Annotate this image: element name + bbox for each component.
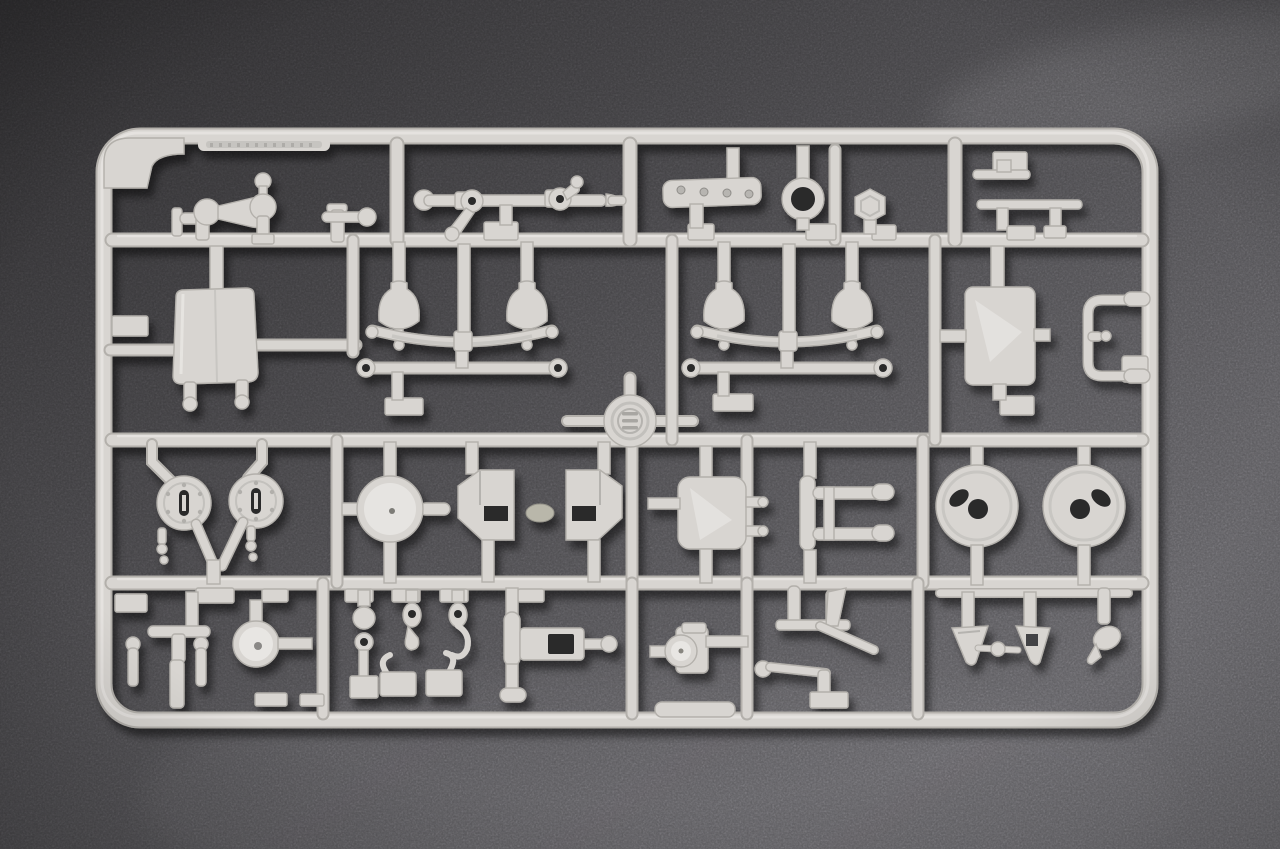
sprue-photo: Light grey injection-moulded plastic mod… bbox=[0, 0, 1280, 849]
photo-stage: Light grey injection-moulded plastic mod… bbox=[0, 0, 1280, 849]
vignette bbox=[0, 0, 1280, 849]
